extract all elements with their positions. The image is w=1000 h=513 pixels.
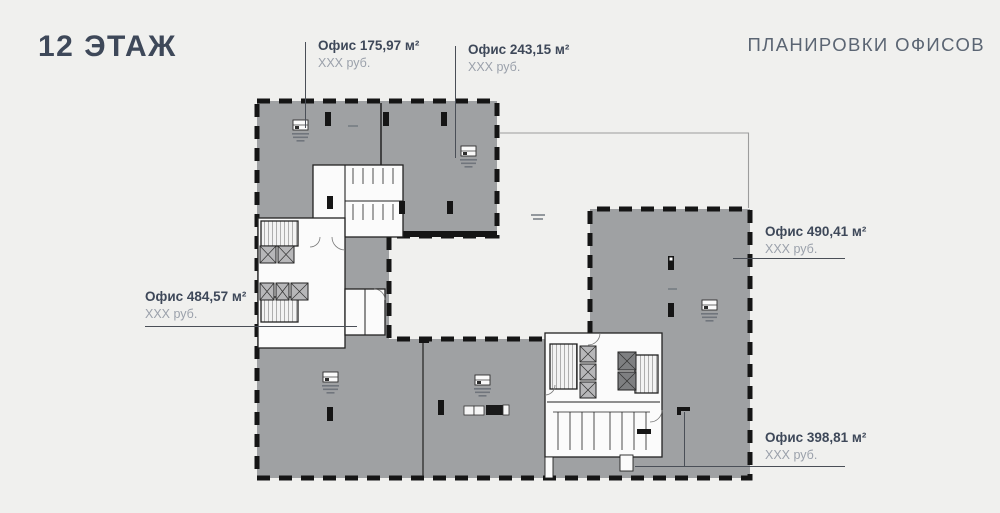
office-label-243[interactable]: Офис 243,15 м² XXX руб. bbox=[468, 42, 569, 74]
office-area: Офис 243,15 м² bbox=[468, 42, 569, 58]
right-core bbox=[545, 333, 662, 478]
office-price: XXX руб. bbox=[468, 60, 569, 74]
office-area: Офис 175,97 м² bbox=[318, 38, 419, 54]
office-area: Офис 398,81 м² bbox=[765, 430, 866, 446]
office-label-490[interactable]: Офис 490,41 м² XXX руб. bbox=[765, 224, 866, 256]
office-price: XXX руб. bbox=[145, 307, 246, 321]
office-price: XXX руб. bbox=[765, 448, 866, 462]
office-label-398[interactable]: Офис 398,81 м² XXX руб. bbox=[765, 430, 866, 462]
office-area: Офис 484,57 м² bbox=[145, 289, 246, 305]
office-label-484[interactable]: Офис 484,57 м² XXX руб. bbox=[145, 289, 246, 321]
office-price: XXX руб. bbox=[318, 56, 419, 70]
office-price: XXX руб. bbox=[765, 242, 866, 256]
furniture-marks bbox=[464, 405, 509, 415]
office-label-175[interactable]: Офис 175,97 м² XXX руб. bbox=[318, 38, 419, 70]
office-area: Офис 490,41 м² bbox=[765, 224, 866, 240]
floor-plan-page: 12 ЭТАЖ ПЛАНИРОВКИ ОФИСОВ bbox=[0, 0, 1000, 513]
terrace-outline bbox=[500, 133, 749, 208]
